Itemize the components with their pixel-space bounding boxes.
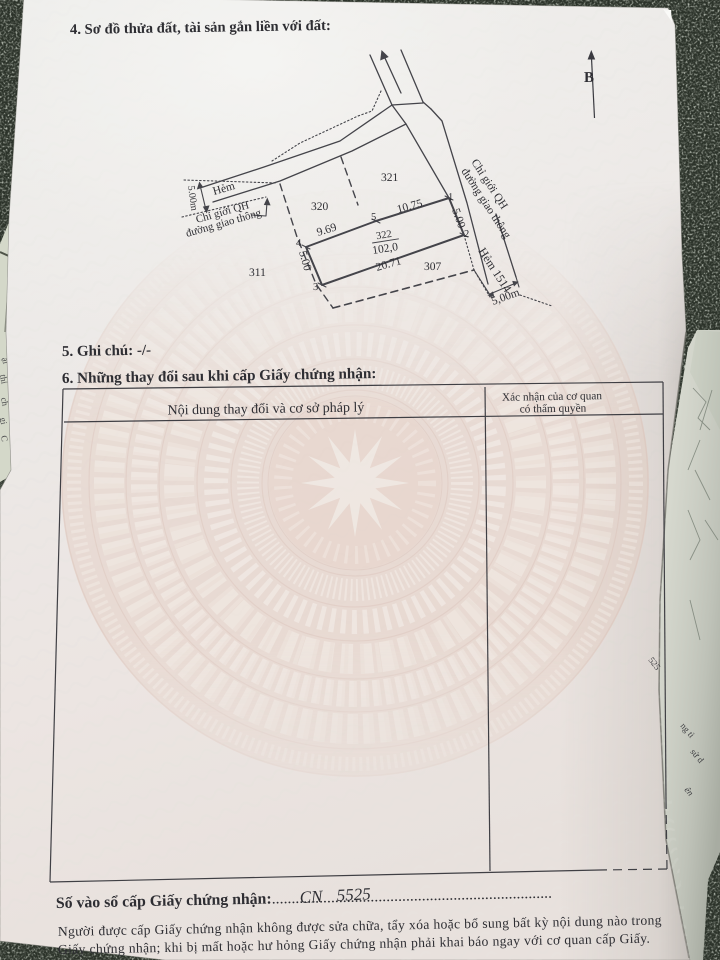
svg-text:321: 321 (381, 172, 399, 184)
svg-text:311: 311 (249, 267, 266, 279)
svg-text:5. Ghi chú: -/-: 5. Ghi chú: -/- (62, 343, 151, 360)
svg-text:CN: CN (299, 887, 324, 907)
svg-text:5: 5 (371, 212, 376, 223)
svg-text:2: 2 (464, 229, 469, 240)
svg-text:1: 1 (448, 192, 453, 203)
svg-text:307: 307 (424, 261, 442, 273)
svg-text:Xác nhận của cơ quan: Xác nhận của cơ quan (502, 390, 603, 404)
svg-text:4: 4 (296, 238, 302, 249)
svg-text:320: 320 (311, 201, 329, 213)
svg-text:Nội dung thay đổi và cơ sở phá: Nội dung thay đổi và cơ sở pháp lý (167, 400, 364, 418)
svg-text:có thẩm quyền: có thẩm quyền (520, 402, 587, 415)
svg-text:3: 3 (313, 282, 318, 293)
svg-text:B: B (584, 70, 594, 86)
svg-text:5525: 5525 (336, 884, 371, 905)
